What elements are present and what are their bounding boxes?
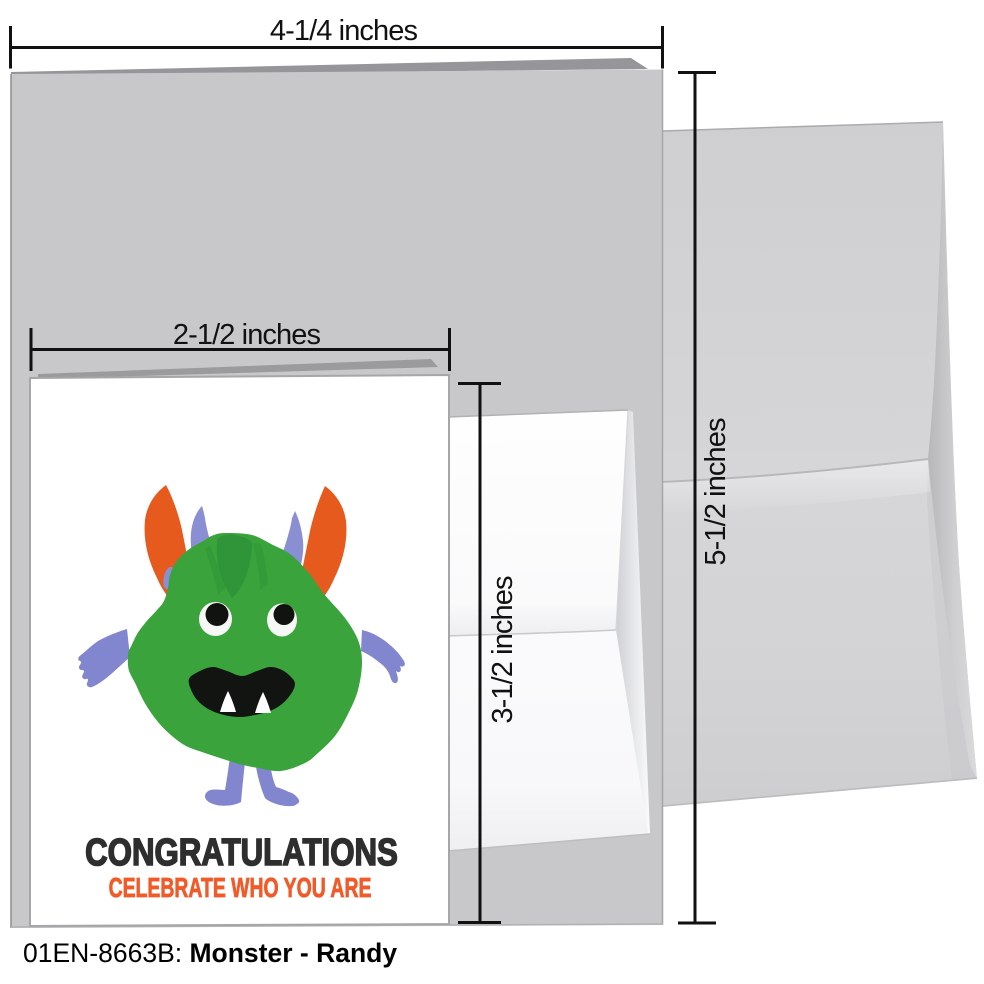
svg-text:3-1/2 inches: 3-1/2 inches — [487, 576, 519, 724]
svg-text:CONGRATULATIONS: CONGRATULATIONS — [85, 832, 398, 874]
svg-text:CELEBRATE WHO YOU ARE: CELEBRATE WHO YOU ARE — [109, 873, 372, 904]
svg-text:4-1/4 inches: 4-1/4 inches — [270, 15, 418, 47]
svg-text:01EN-8663B: Monster - Randy: 01EN-8663B: Monster - Randy — [23, 938, 397, 968]
svg-text:2-1/2 inches: 2-1/2 inches — [173, 319, 321, 351]
svg-text:5-1/2 inches: 5-1/2 inches — [700, 418, 732, 566]
